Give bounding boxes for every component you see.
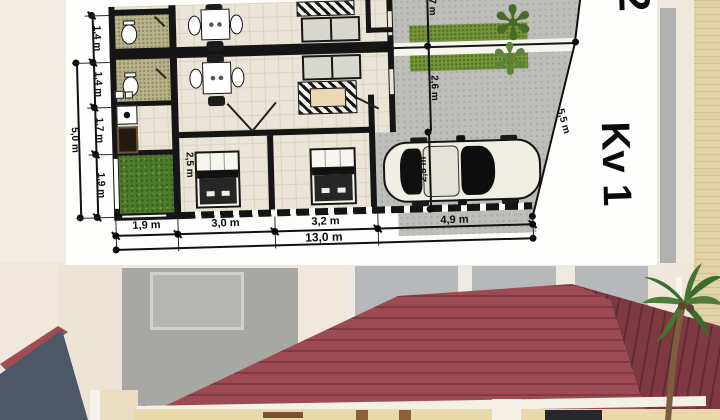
dim-bottom-1: 1,9 m <box>132 220 160 232</box>
dim-right-top: 7 m <box>426 0 436 16</box>
door-post-1 <box>356 410 368 420</box>
dim-left-2: 1,4 m <box>92 71 103 97</box>
dim-bottom-2: 3,0 m <box>211 218 239 230</box>
ext-l3 <box>87 107 111 109</box>
bed1-pleat-2 <box>224 153 225 170</box>
bed-2 <box>309 147 357 205</box>
left-house-trim <box>90 390 100 420</box>
dim-left-1: 1,4 m <box>91 25 102 51</box>
bed2-chip-1 <box>322 188 330 193</box>
dim-left-total: 5,0 m <box>69 127 80 153</box>
dim-left-4: 1,9 m <box>95 172 106 198</box>
bd-t2 <box>529 235 536 242</box>
bed2-chip-2 <box>338 187 346 192</box>
dim-bottom-total: 13,0 m <box>305 231 343 244</box>
bed2-blanket <box>314 174 353 201</box>
floor-plan-panel: ✻ ✻ <box>66 0 657 265</box>
plot-number-2: 2 <box>611 0 656 12</box>
ext-l1 <box>85 15 109 17</box>
plot-label-kv1: Kv 1 <box>595 121 637 207</box>
dim-bottom-3: 3,2 m <box>311 216 339 228</box>
garden-patch <box>118 152 174 214</box>
bed1-blanket <box>199 178 237 205</box>
bd-t1 <box>113 246 120 253</box>
car-mirror-1 <box>456 135 465 141</box>
bed-1 <box>194 150 241 208</box>
front-door-gap-lower <box>389 69 394 94</box>
dim-bedroom: 2,5 m <box>183 152 194 178</box>
palm-tree <box>598 263 720 420</box>
door-post-2 <box>399 410 411 420</box>
dark-window <box>545 410 602 420</box>
floor-plan-drawing: ✻ ✻ <box>66 0 657 265</box>
house-render-photo <box>0 263 720 420</box>
background-window <box>150 272 244 330</box>
sofa-divider-l <box>331 57 333 78</box>
stove <box>116 105 138 125</box>
sofa-lower <box>302 54 362 81</box>
front-window-frame <box>263 412 303 418</box>
rug-upper <box>296 0 354 17</box>
coffee-table <box>310 87 347 107</box>
dim-bottom-4: 4,9 m <box>440 215 468 227</box>
dim-left-3: 1,7 m <box>93 117 104 143</box>
sofa-upper <box>301 16 361 43</box>
left-house-wall <box>100 390 138 420</box>
car-mirror-2 <box>458 199 467 205</box>
porch-wall-h <box>366 27 393 33</box>
bath-sink-1 <box>115 91 124 99</box>
bed1-pleat-1 <box>210 153 211 170</box>
bed1-chip-1 <box>207 191 215 196</box>
car-top-view <box>382 137 542 204</box>
dining-chair-bottom-l <box>208 96 225 106</box>
dim-right-mid: 2,6 m <box>428 75 439 101</box>
plant-icon-2: ✻ <box>491 34 529 86</box>
bed2-pleat-1 <box>324 150 325 167</box>
bed2-pleat-2 <box>339 150 340 167</box>
dim-carport: 2,5 m <box>419 156 430 182</box>
sofa-divider-u <box>330 19 332 40</box>
dining-table-u <box>201 9 231 41</box>
porch-pillar <box>492 399 521 420</box>
ext-l4 <box>89 154 113 156</box>
bed1-chip-2 <box>222 191 230 196</box>
dining-table-l <box>202 62 232 95</box>
screenshot-root: ✻ ✻ <box>0 0 720 420</box>
kitchen-counter <box>117 126 139 154</box>
dining-chair-bottom-u <box>206 41 223 51</box>
car-windshield <box>460 145 495 195</box>
bath-sink-2 <box>125 91 133 98</box>
